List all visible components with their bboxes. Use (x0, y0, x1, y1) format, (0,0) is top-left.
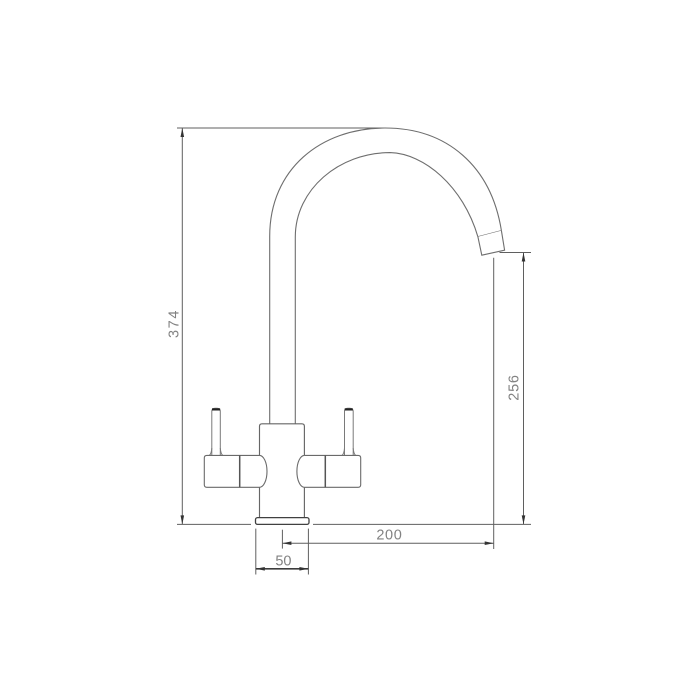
svg-text:374: 374 (167, 309, 183, 338)
svg-text:200: 200 (376, 527, 402, 543)
svg-text:50: 50 (275, 553, 291, 569)
svg-text:256: 256 (507, 374, 523, 401)
